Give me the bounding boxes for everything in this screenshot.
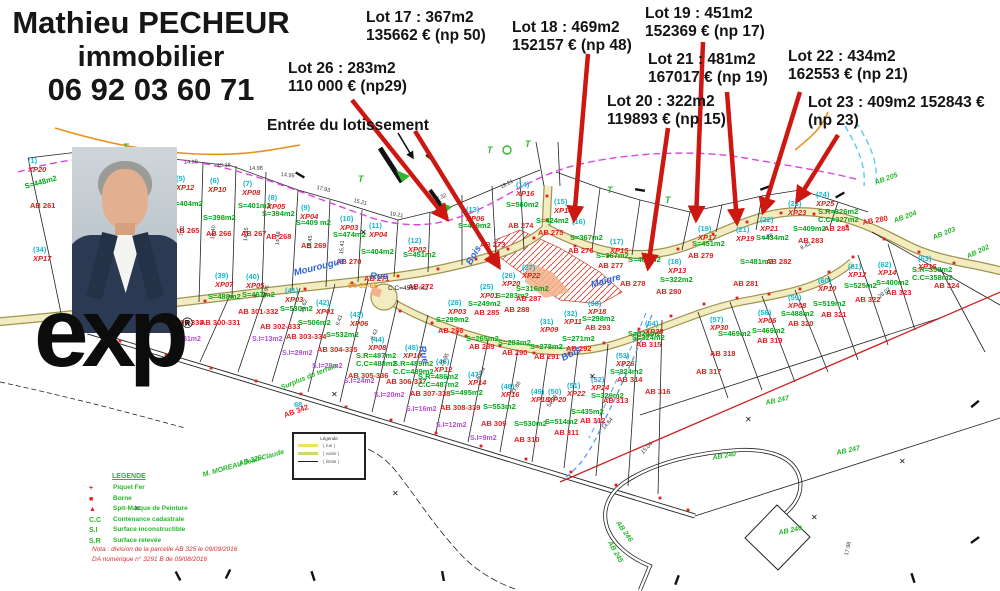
lot-pointer-arrow [696, 42, 703, 220]
agent-name: Mathieu PECHEUR [0, 6, 302, 41]
legend-item: ■Borne [86, 496, 188, 503]
cadastral-plan-page: (1)XP20S=448m2AB 261(34)XP17AB 373-340-3… [0, 0, 1000, 591]
inset-legend-title: Légende [298, 436, 360, 441]
inset-legend-label: ( limite ) [323, 459, 339, 464]
lot-pointer-arrow [763, 92, 800, 212]
legend-abbr: S.I [86, 527, 113, 534]
legend-item: ▲Spit-Marque de Peinture [86, 506, 188, 513]
inset-legend-box: Légende ( rue )( voirie )( limite ) [292, 432, 366, 480]
legend-item: S.ISurface inconstructible [86, 527, 188, 534]
inset-legend-label: ( voirie ) [323, 451, 339, 456]
legend-item-label: Borne [113, 496, 132, 503]
agent-phone: 06 92 03 60 71 [0, 73, 302, 108]
inset-legend-label: ( rue ) [323, 443, 335, 448]
inset-legend-item: ( rue ) [298, 443, 360, 448]
nota-line-1: Nota : division de la parcelle AB 325 le… [92, 545, 237, 555]
agency-type: immobilier [0, 41, 302, 73]
inset-legend-swatch [298, 444, 318, 447]
inset-legend-swatch [298, 461, 318, 463]
legend-item: +Piquet Fer [86, 485, 188, 492]
exp-logo-text: exp [34, 277, 182, 387]
legend-item-label: Contenance cadastrale [113, 517, 184, 524]
legend-item: C.CContenance cadastrale [86, 517, 188, 524]
legend-item: S.RSurface relevée [86, 538, 188, 545]
legend-item-label: Surface inconstructible [113, 527, 185, 534]
legend-item-label: Surface relevée [113, 538, 161, 545]
square-symbol-icon: ■ [86, 496, 113, 503]
entrance-arrow [398, 133, 413, 158]
lot-pointer-arrow [574, 54, 588, 220]
inset-legend-item: ( limite ) [298, 459, 360, 464]
registered-mark-icon: ® [182, 315, 193, 332]
inset-legend-swatch [298, 452, 318, 455]
lot-pointer-arrow [648, 128, 668, 268]
legend-abbr: S.R [86, 538, 113, 545]
nota-note: Nota : division de la parcelle AB 325 le… [92, 545, 237, 565]
photo-face [102, 169, 148, 229]
legend-title: LEGENDE [112, 473, 188, 480]
nota-line-2: DA numérique n° 3291 B de 09/08/2016 [92, 555, 237, 565]
cross-symbol-icon: + [86, 485, 113, 492]
legend-item-label: Piquet Fer [113, 485, 145, 492]
triangle-symbol-icon: ▲ [86, 506, 113, 513]
legend-item-label: Spit-Marque de Peinture [113, 506, 188, 513]
lot-pointer-arrow [727, 92, 737, 223]
legend-abbr: C.C [86, 517, 113, 524]
lot-pointer-arrow [415, 131, 499, 267]
exp-logo: exp® [34, 283, 193, 381]
inset-legend-item: ( voirie ) [298, 451, 360, 456]
map-legend: LEGENDE +Piquet Fer■Borne▲Spit-Marque de… [86, 473, 188, 548]
lot-pointer-arrow [797, 135, 838, 201]
agency-header: Mathieu PECHEUR immobilier 06 92 03 60 7… [0, 6, 302, 108]
